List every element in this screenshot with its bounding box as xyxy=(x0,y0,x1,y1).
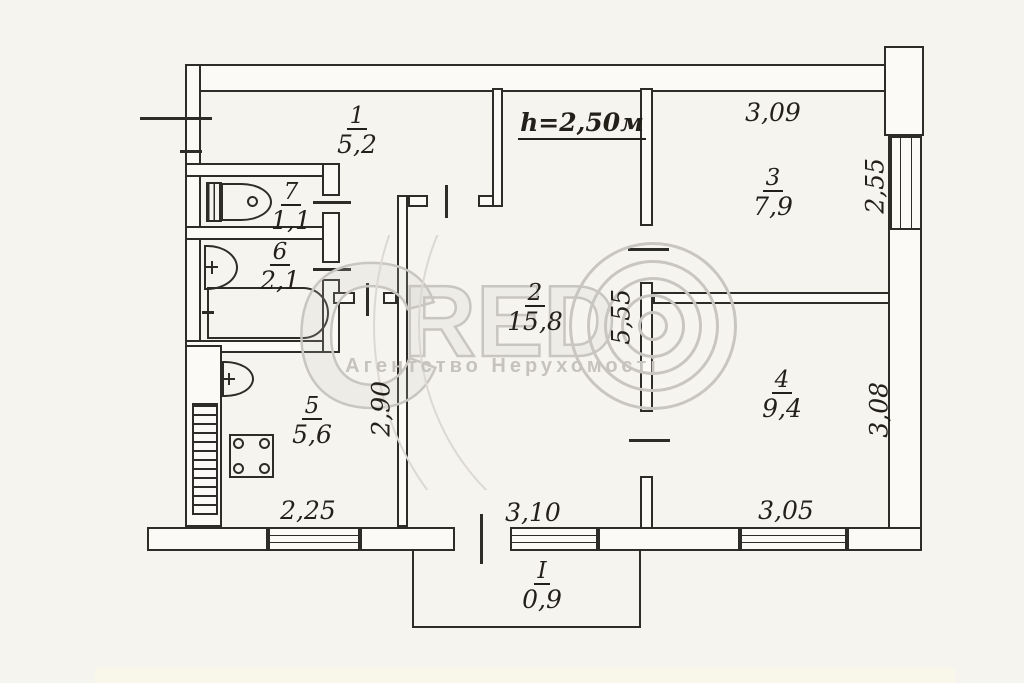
wall-kitchen-door-left xyxy=(333,292,355,304)
stove-burner xyxy=(233,438,244,449)
room-7-number: 7 xyxy=(281,180,302,206)
wall-bottom-left xyxy=(147,527,268,551)
wall-kitchen-right xyxy=(397,195,408,527)
room4-door-tick xyxy=(629,439,670,442)
room2-door-tick xyxy=(445,185,448,218)
room-4-area: 9,4 xyxy=(742,394,822,424)
wall-center-lower xyxy=(640,476,653,529)
wall-rooms34-divider xyxy=(653,292,890,304)
ceiling-height-label: h=2,50м xyxy=(512,108,652,140)
kitchen-door-tick xyxy=(366,283,369,316)
room-7-area: 1,1 xyxy=(251,206,331,236)
room-5-number: 5 xyxy=(302,394,323,420)
entry-door-tick-long xyxy=(140,117,212,120)
room-label-6: 6 2,1 xyxy=(240,240,320,296)
room-1-number: 1 xyxy=(347,104,368,130)
room-3-area: 7,9 xyxy=(733,192,813,222)
stove-burner xyxy=(259,463,270,474)
window-kitchen xyxy=(268,527,360,551)
wall-kitchen-door-right xyxy=(383,292,397,304)
wall-hall-bottom-left-jamb xyxy=(408,195,428,207)
room-2-number: 2 xyxy=(525,281,546,307)
room-5-area: 5,6 xyxy=(272,420,352,450)
room-3-number: 3 xyxy=(763,166,784,192)
dim-room2-height: 5,55 xyxy=(607,267,635,367)
wall-bottom-right xyxy=(847,527,922,551)
bath-sink-cross-v xyxy=(211,261,213,274)
wall-center-middle xyxy=(640,282,653,412)
dim-room2-window: 3,10 xyxy=(483,499,583,527)
window-room4 xyxy=(740,527,847,551)
wall-hall-vertical xyxy=(492,88,503,207)
room-4-number: 4 xyxy=(772,368,793,394)
vent-shaft-icon xyxy=(192,403,218,515)
balcony-number: I xyxy=(534,559,549,585)
stove-icon xyxy=(229,434,274,478)
window-room2 xyxy=(510,527,598,551)
balcony-area: 0,9 xyxy=(502,585,582,615)
dim-room3-top: 3,09 xyxy=(723,99,823,127)
room-label-5: 5 5,6 xyxy=(272,394,352,450)
room-1-area: 5,2 xyxy=(317,130,397,160)
room-label-2: 2 15,8 xyxy=(495,281,575,337)
room-2-area: 15,8 xyxy=(495,307,575,337)
toilet-tank xyxy=(206,182,222,222)
wall-top-outer xyxy=(185,64,890,92)
room3-door-tick xyxy=(628,248,669,251)
entry-door-tick-short xyxy=(180,150,202,153)
room-6-number: 6 xyxy=(270,240,291,266)
room-label-3: 3 7,9 xyxy=(733,166,813,222)
floor-plan: C RED Агентство Нерухомості 1 5,2 7 1,1 … xyxy=(0,0,1024,683)
dim-room4-window: 3,05 xyxy=(736,497,836,525)
room-6-area: 2,1 xyxy=(240,266,320,296)
wall-bottom-center xyxy=(598,527,740,551)
room-label-1: 1 5,2 xyxy=(317,104,397,160)
room-label-4: 4 9,4 xyxy=(742,368,822,424)
wall-bottom-kitchen-right xyxy=(360,527,455,551)
wall-wc-top xyxy=(185,163,340,177)
balcony-label: I 0,9 xyxy=(502,559,582,615)
dim-room3-right-window: 2,55 xyxy=(861,136,889,236)
dim-kitchen-window: 2,25 xyxy=(258,497,358,525)
scan-artifact-strip xyxy=(95,668,955,683)
stove-burner xyxy=(259,438,270,449)
stove-burner xyxy=(233,463,244,474)
dim-room4-right: 3,08 xyxy=(865,360,893,460)
bathtub-tap-tick xyxy=(202,311,214,314)
window-room3 xyxy=(890,136,922,230)
room-label-7: 7 1,1 xyxy=(251,180,331,236)
kitchen-sink-cross-v xyxy=(228,373,230,385)
pillar-top-right xyxy=(884,46,924,136)
dim-kitchen-height: 2,90 xyxy=(367,359,395,459)
